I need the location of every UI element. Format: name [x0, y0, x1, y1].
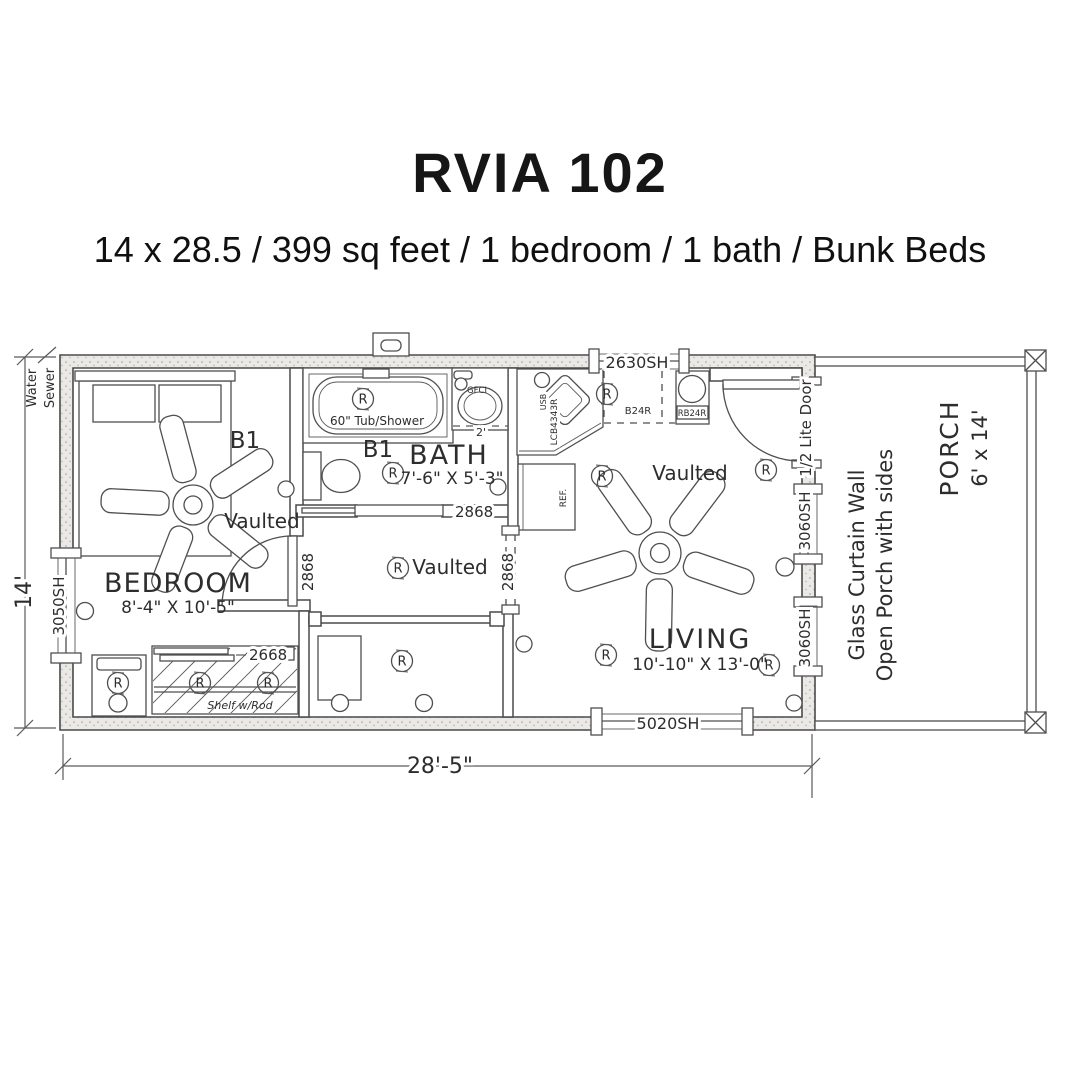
bunk-bed — [318, 636, 361, 700]
fridge-label: REF. — [559, 489, 569, 508]
living-window-upper-label: 3060SH — [796, 492, 814, 551]
living-window-lower-label: 3060SH — [796, 609, 814, 668]
svg-text:R: R — [597, 470, 606, 485]
bath-bunk-label: B1 — [363, 437, 393, 463]
usb-label: USB — [539, 394, 548, 410]
porch-note-2: Open Porch with sides — [873, 449, 897, 681]
tub-faucet — [363, 369, 389, 378]
kitchen-faucet — [535, 373, 550, 388]
vanity-clearance-label: 2' — [476, 426, 486, 439]
closet-shelf-label: Shelf w/Rod — [207, 699, 273, 712]
floor-outlet — [332, 695, 349, 712]
bath-dims: 7'-6" X 5'-3" — [401, 469, 504, 489]
sewer-label: Sewer — [43, 367, 58, 408]
bedroom-label: BEDROOM — [104, 568, 252, 599]
bathroom-vanity — [452, 368, 508, 430]
porch-dims: 6' x 14' — [968, 409, 992, 486]
svg-text:R: R — [113, 677, 122, 692]
kitchen-window-label: 2630SH — [606, 353, 669, 372]
tub — [303, 368, 453, 443]
receptacle: R — [392, 650, 413, 672]
bath-label: BATH — [409, 440, 489, 471]
range-label: RB24R — [678, 409, 707, 419]
living-dims: 10'-10" X 13'-0" — [632, 655, 767, 675]
svg-text:R: R — [397, 655, 406, 670]
bunkroom-left-wall — [299, 611, 309, 717]
svg-text:R: R — [602, 388, 611, 403]
svg-text:R: R — [761, 464, 770, 479]
bath-door-label: 2868 — [455, 503, 493, 521]
hall-vaulted: Vaulted — [412, 555, 487, 579]
entry-header-wall — [710, 368, 802, 381]
kitchen-corner-sink — [517, 369, 603, 455]
bedroom-door-label: 2868 — [299, 553, 317, 591]
bedroom-window-label: 3050SH — [50, 577, 68, 636]
width-dim-label: 28'-5" — [407, 754, 473, 779]
receptacle: R — [388, 557, 409, 579]
bedroom-vaulted: Vaulted — [224, 509, 299, 533]
svg-text:R: R — [195, 677, 204, 692]
corner-cabinet-label: LCB4343R — [550, 399, 560, 446]
entry-door-label: 1/2 Lite Door — [797, 378, 815, 476]
porch-note-1: Glass Curtain Wall — [845, 469, 869, 660]
exterior-light-fixture — [373, 333, 409, 356]
hall-opening-label: 2868 — [499, 553, 517, 591]
floor-plan: R R R R R R R R R R R R Water Sewer 14' … — [0, 0, 1080, 1080]
floor-outlet — [416, 695, 433, 712]
height-dim-label: 14' — [12, 575, 37, 609]
svg-text:R: R — [263, 677, 272, 692]
water-label: Water — [25, 368, 40, 407]
gfci-label: GFCI — [467, 386, 487, 396]
svg-text:R: R — [388, 467, 397, 482]
porch-post-bottom — [1025, 712, 1046, 733]
porch-label: PORCH — [935, 399, 964, 496]
pillow — [93, 385, 155, 422]
tub-label: 60" Tub/Shower — [330, 414, 424, 428]
porch-post-top — [1025, 350, 1046, 371]
faucet — [455, 378, 467, 390]
living-vaulted: Vaulted — [652, 461, 727, 485]
base-cabinet-label: B24R — [625, 406, 652, 417]
bunkroom-jamb-left — [309, 612, 321, 626]
svg-text:R: R — [358, 393, 367, 408]
bedroom-bunk-label: B1 — [230, 428, 260, 454]
bedroom-dims: 8'-4" X 10'-5" — [121, 598, 235, 618]
closet-door-label: 2668 — [249, 646, 287, 664]
receptacle: R — [596, 644, 617, 666]
toilet — [303, 452, 360, 500]
living-window-bottom-label: 5020SH — [637, 714, 700, 733]
receptacle: R — [756, 459, 777, 481]
bunkroom-front-wall — [309, 616, 505, 623]
svg-text:R: R — [601, 649, 610, 664]
living-label: LIVING — [649, 624, 752, 655]
svg-text:R: R — [393, 562, 402, 577]
